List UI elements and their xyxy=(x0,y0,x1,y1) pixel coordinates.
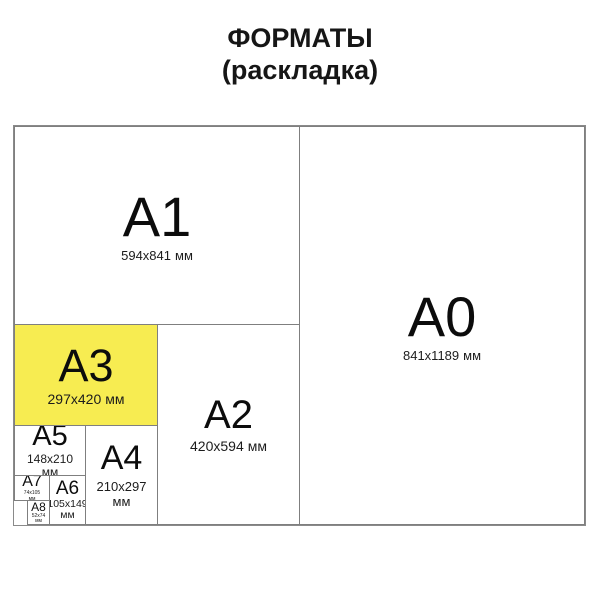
page-title-line1: ФОРМАТЫ xyxy=(0,22,600,54)
page: ФОРМАТЫ (раскладка) A1 594x841мм A0 841x… xyxy=(0,0,600,600)
format-a3-highlighted: A3 297x420мм xyxy=(14,324,158,426)
format-a6-label: A6 xyxy=(56,479,79,498)
format-a6-unit: мм xyxy=(49,510,86,521)
format-a1-dimensions: 594x841мм xyxy=(121,248,193,263)
format-a5: A5 148x210мм xyxy=(14,425,86,476)
paper-formats-diagram: A1 594x841мм A0 841x1189мм A3 297x420мм … xyxy=(13,125,586,526)
format-a0-dimensions: 841x1189мм xyxy=(403,348,481,363)
format-a6-dimensions: 105x149мм xyxy=(49,499,86,521)
format-a6: A6 105x149мм xyxy=(49,475,86,525)
format-a3-size: 297x420 xyxy=(48,391,102,407)
format-a8-unit: мм xyxy=(32,519,46,524)
format-a3-label: A3 xyxy=(58,343,113,389)
format-a8: A8 52x74мм xyxy=(27,500,50,525)
format-a8-dimensions: 52x74мм xyxy=(32,514,46,524)
format-a7-label: A7 xyxy=(22,475,42,490)
page-title-line2: (раскладка) xyxy=(0,54,600,86)
format-a4-dimensions: 210x297мм xyxy=(97,479,147,509)
format-a7: A7 74x105мм xyxy=(14,475,50,501)
format-a5-dimensions: 148x210мм xyxy=(27,453,73,476)
format-a2-unit: мм xyxy=(248,438,267,454)
format-a2-size: 420x594 xyxy=(190,438,244,454)
format-a5-label: A5 xyxy=(32,425,67,452)
format-a3-dimensions: 297x420мм xyxy=(48,391,125,407)
format-a2-dimensions: 420x594мм xyxy=(190,438,267,454)
format-a4-label: A4 xyxy=(101,441,143,476)
format-a2-label: A2 xyxy=(204,395,253,436)
format-a2: A2 420x594мм xyxy=(157,324,300,525)
format-a4: A4 210x297мм xyxy=(85,425,158,525)
format-a0: A0 841x1189мм xyxy=(299,126,585,525)
format-a4-unit: мм xyxy=(97,494,147,509)
format-a0-unit: мм xyxy=(463,348,481,363)
format-a4-size: 210x297 xyxy=(97,479,147,494)
format-a0-label: A0 xyxy=(408,288,477,345)
format-a3-unit: мм xyxy=(105,391,124,407)
format-a1: A1 594x841мм xyxy=(14,126,300,325)
page-title: ФОРМАТЫ (раскладка) xyxy=(0,22,600,86)
format-a5-size: 148x210 xyxy=(27,452,73,466)
format-a1-label: A1 xyxy=(123,188,192,245)
format-a0-size: 841x1189 xyxy=(403,348,459,363)
format-a1-unit: мм xyxy=(175,248,193,263)
format-a1-size: 594x841 xyxy=(121,248,171,263)
